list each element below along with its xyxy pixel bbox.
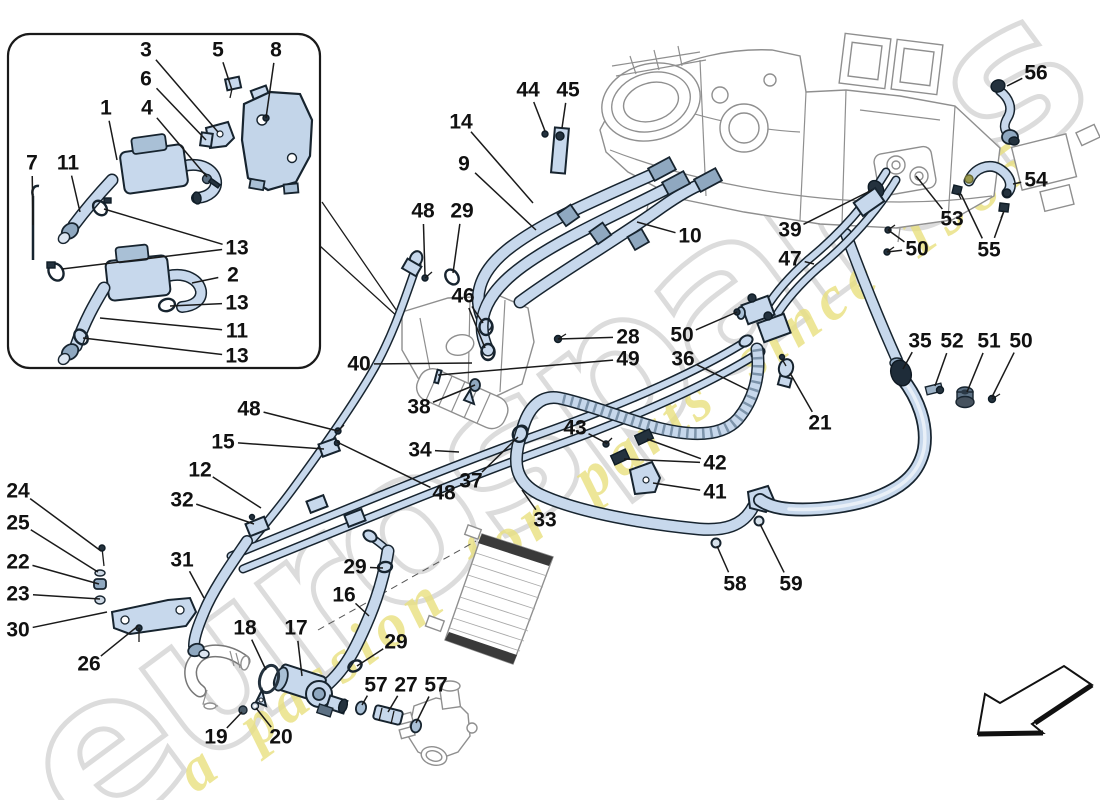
coolant-pipe-outline — [191, 651, 251, 709]
inset-box-group — [8, 34, 320, 368]
diagram-page: eurospares a passion for parts since 198… — [0, 0, 1100, 800]
thermostat-drawing — [397, 681, 477, 768]
hvac-unit-drawing — [592, 33, 1100, 242]
diagram-artwork — [0, 0, 1100, 800]
mount-bracket-stack — [94, 545, 196, 642]
water-valve-1 — [56, 134, 216, 246]
inset-reference-lines — [320, 202, 399, 318]
direction-arrow — [978, 666, 1092, 734]
bracket-8 — [242, 86, 312, 194]
engine-manifold-drawing — [402, 296, 534, 433]
small-parts — [603, 185, 1009, 494]
